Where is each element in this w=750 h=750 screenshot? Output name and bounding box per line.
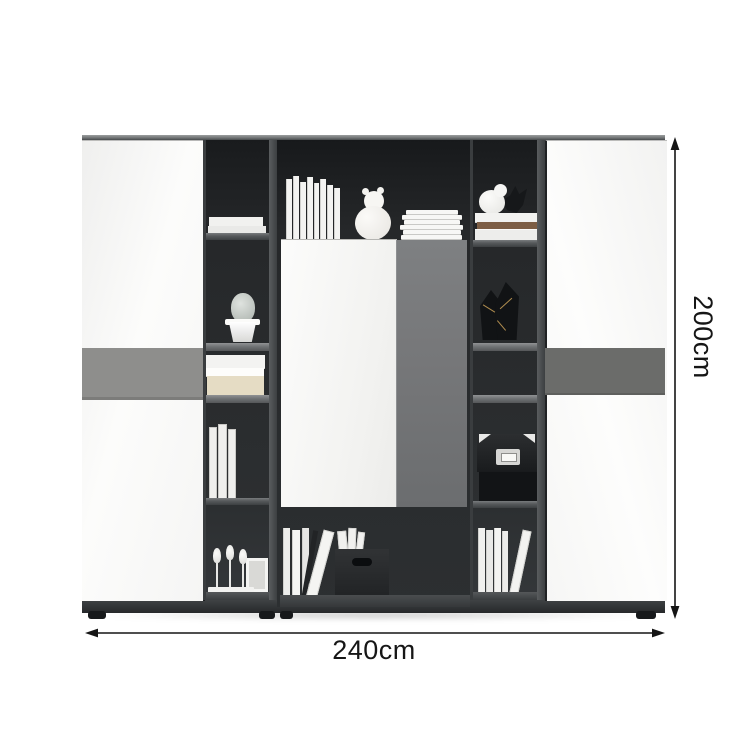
standing-book: [314, 183, 320, 240]
cabinet-top-edge: [82, 135, 665, 140]
standing-book: [320, 179, 326, 240]
standing-book: [293, 176, 299, 240]
shelf-floor: [203, 592, 277, 600]
white-bird-head: [494, 184, 507, 197]
column-frame-edge: [470, 140, 473, 600]
paper-card: [348, 528, 357, 551]
shelf-floor: [280, 595, 470, 607]
candlestick-finial: [213, 548, 221, 563]
middle-section: [277, 140, 470, 607]
gray-accent-band-right: [545, 348, 665, 395]
shelf-divider: [470, 343, 545, 351]
standing-book: [228, 429, 236, 498]
white-book-flat: [205, 355, 265, 369]
teddy-bear-body: [353, 204, 393, 243]
standing-book: [502, 531, 508, 600]
product-dimension-image: 240cm 200cm: [0, 0, 750, 750]
leaning-white-book: [508, 530, 531, 600]
column-frame-edge: [203, 140, 206, 600]
black-geometric-vase: [495, 282, 519, 340]
middle-white-door: [281, 240, 397, 507]
left-shelf-column: [203, 140, 277, 600]
middle-gray-door: [396, 240, 467, 507]
standing-book: [292, 530, 299, 600]
standing-book: [218, 424, 227, 498]
standing-book: [300, 182, 306, 240]
shelf-divider: [203, 343, 277, 351]
shelf-divider: [470, 395, 545, 403]
cabinet-foot: [636, 611, 656, 619]
standing-books-row: [286, 176, 340, 240]
standing-book: [486, 530, 493, 600]
candlestick-stem: [216, 562, 218, 587]
column-frame-edge: [537, 140, 545, 600]
shelf-divider: [470, 240, 545, 247]
cabinet-foot: [280, 611, 293, 619]
shelf-divider: [203, 395, 277, 403]
candlestick-finial: [226, 545, 234, 560]
height-dimension-label: 200cm: [689, 287, 717, 387]
storage-box-handle: [352, 558, 372, 566]
standing-book: [327, 185, 333, 240]
shelf-divider: [203, 498, 277, 505]
standing-book: [209, 427, 217, 498]
standing-book: [478, 528, 485, 600]
shelf-divider: [203, 233, 277, 240]
cabinet-foot: [259, 611, 275, 619]
height-dimension-arrow: [668, 132, 682, 624]
column-frame-edge: [269, 140, 277, 600]
stacked-books: [400, 210, 463, 240]
plant-pot: [227, 322, 258, 342]
shelf-divider: [470, 501, 545, 508]
brown-book-flat: [477, 222, 538, 229]
standing-book: [307, 177, 313, 240]
standing-book: [334, 188, 340, 240]
shelf-floor: [470, 592, 545, 600]
standing-book: [283, 528, 290, 600]
candlestick-stem: [242, 563, 244, 587]
black-box: [479, 472, 538, 501]
standing-books-row: [478, 528, 508, 600]
width-dimension-label: 240cm: [324, 636, 424, 664]
cabinet-foot: [88, 611, 106, 619]
candlestick-finial: [239, 549, 247, 564]
candlestick-stem: [229, 559, 231, 587]
right-shelf-column: [470, 140, 545, 600]
file-box-label-slot: [501, 453, 517, 462]
standing-book: [494, 528, 501, 600]
gray-accent-band-left: [82, 348, 203, 400]
beige-book-flat: [207, 376, 264, 395]
standing-book: [286, 179, 292, 240]
